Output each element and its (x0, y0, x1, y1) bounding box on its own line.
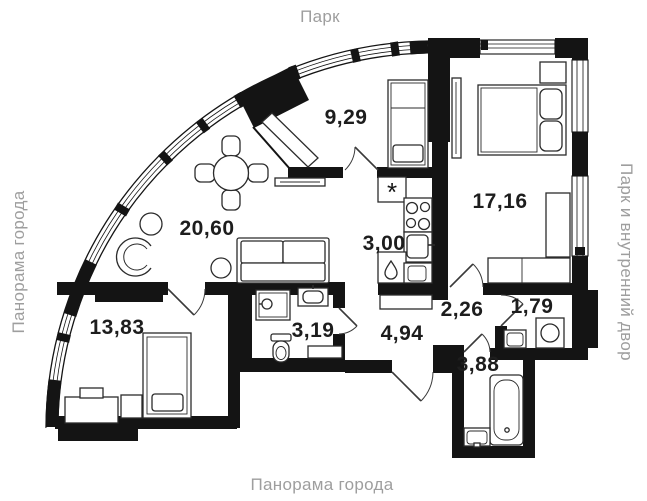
bed-single-bedroom2 (143, 333, 191, 418)
washbasin (298, 285, 328, 306)
bathtub (490, 375, 523, 445)
door-bedroom (450, 264, 483, 287)
floor-plan: 9,29 17,16 20,60 3,00 13,83 3,19 4,94 2,… (0, 0, 647, 501)
room-area-label-study: 9,29 (325, 106, 368, 129)
room-area-label-hall: 4,94 (381, 322, 424, 345)
room-area-label-storage: 1,79 (511, 295, 554, 318)
window-top-bedroom (480, 40, 555, 54)
surrounding-label-bottom: Панорама города (251, 475, 394, 494)
armchair (117, 238, 151, 276)
toilet (271, 334, 291, 362)
window-right-upper (572, 60, 588, 132)
surrounding-label-right: Парк и внутренний двор (617, 163, 636, 361)
shower-tray (256, 290, 290, 320)
side-table (211, 258, 231, 278)
kitchen-sink (404, 232, 435, 262)
door-entry (392, 372, 433, 401)
desk-bedroom (488, 258, 570, 283)
sofa (237, 238, 329, 283)
dishwasher (378, 252, 406, 283)
washing-machine (536, 318, 564, 348)
room-area-label-bathroom: 3,19 (292, 319, 335, 342)
room-area-label-bathroom2: 3,88 (457, 353, 500, 376)
door-study (345, 147, 378, 170)
room-area-label-living: 20,60 (179, 217, 234, 240)
dining-table (195, 136, 268, 210)
furniture (65, 62, 570, 447)
surrounding-label-left: Панорама города (9, 190, 28, 333)
bed-single-study (388, 80, 428, 168)
desk-bedroom2 (65, 388, 118, 423)
tv-console (275, 178, 325, 186)
wardrobe-bedroom (546, 193, 570, 257)
door-bedroom2 (168, 289, 205, 315)
ventilation-icon: * (387, 177, 397, 207)
room-area-label-bedroom: 17,16 (472, 190, 527, 213)
laundry-basket (504, 330, 526, 348)
surrounding-label-top: Парк (300, 7, 340, 26)
door-bathroom (339, 308, 357, 334)
room-area-label-kitchen: 3,00 (363, 232, 406, 255)
room-area-label-bedroom2: 13,83 (89, 316, 144, 339)
bed-double (478, 85, 566, 155)
floor-lamp (140, 213, 162, 235)
door-bathroom2 (464, 334, 490, 352)
kitchen-cabinet (404, 263, 432, 283)
nightstand-bedroom (540, 62, 566, 83)
washbasin-bathroom2 (464, 428, 490, 447)
nightstand-bedroom2 (121, 395, 142, 418)
wardrobe-study (262, 113, 318, 167)
fridge (380, 295, 432, 309)
mirror (452, 78, 461, 158)
bathroom-cabinet (308, 346, 342, 358)
room-area-label-corridor: 2,26 (441, 298, 484, 321)
window-right-lower (572, 176, 588, 256)
stove (404, 198, 432, 232)
